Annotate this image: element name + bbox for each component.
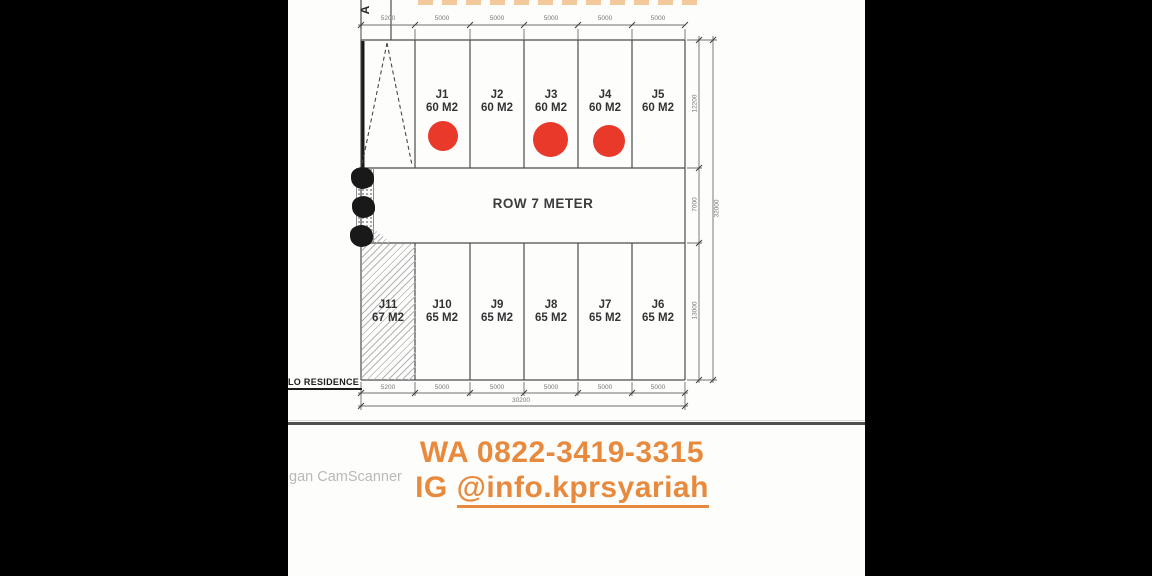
lot-area: 67 M2 — [372, 312, 404, 324]
lot-j5: J5 60 M2 — [630, 89, 686, 114]
dim-right-total: 32000 — [714, 187, 721, 231]
lot-j7: J7 65 M2 — [577, 299, 633, 324]
lot-j10: J10 65 M2 — [414, 299, 470, 324]
lot-j6: J6 65 M2 — [630, 299, 686, 324]
page-edge-line — [288, 420, 865, 421]
dim-top-1: 5200 — [366, 15, 410, 22]
lot-area: 60 M2 — [535, 102, 567, 114]
whatsapp-contact: WA 0822-3419-3315 — [288, 436, 836, 470]
sold-marker-j4 — [593, 125, 625, 157]
lot-area: 65 M2 — [481, 312, 513, 324]
lot-id: J5 — [652, 89, 665, 101]
dim-top-3: 5000 — [475, 15, 519, 22]
left-black-bar — [0, 0, 288, 576]
dim-bottom-1: 5200 — [366, 384, 410, 391]
lot-j2: J2 60 M2 — [469, 89, 525, 114]
lot-id: J7 — [599, 299, 612, 311]
lot-id: J11 — [379, 299, 398, 311]
sold-marker-j1 — [428, 121, 458, 151]
lot-area: 60 M2 — [426, 102, 458, 114]
lot-j9: J9 65 M2 — [469, 299, 525, 324]
dim-bottom-4: 5000 — [529, 384, 573, 391]
dim-bottom-5: 5000 — [583, 384, 627, 391]
dim-right-bottom: 13000 — [692, 289, 699, 333]
dim-top-4: 5000 — [529, 15, 573, 22]
dim-total-width: 30200 — [499, 397, 543, 404]
lot-area: 65 M2 — [589, 312, 621, 324]
lot-id: J1 — [436, 89, 449, 101]
dim-right-top: 12200 — [692, 82, 699, 126]
lot-j1: J1 60 M2 — [414, 89, 470, 114]
camscanner-watermark: gan CamScanner — [289, 469, 402, 485]
page-edge-shadow — [288, 422, 865, 425]
dim-top-2: 5000 — [420, 15, 464, 22]
dim-top-5: 5000 — [583, 15, 627, 22]
lot-id: J8 — [545, 299, 558, 311]
tree-icon — [351, 167, 374, 189]
lot-id: J10 — [432, 299, 451, 311]
lot-j11: J11 67 M2 — [360, 299, 416, 324]
dim-bottom-6: 5000 — [636, 384, 680, 391]
right-black-bar — [865, 0, 1152, 576]
instagram-handle: @info.kprsyariah — [457, 471, 709, 508]
lot-area: 60 M2 — [481, 102, 513, 114]
lot-area: 60 M2 — [589, 102, 621, 114]
lot-id: J2 — [491, 89, 504, 101]
dim-bottom-2: 5000 — [420, 384, 464, 391]
tree-icon — [352, 196, 375, 218]
lot-area: 60 M2 — [642, 102, 674, 114]
lot-id: J9 — [491, 299, 504, 311]
video-frame: A J1 60 M2 J2 60 M2 J3 60 M2 J4 60 M2 J5… — [0, 0, 1152, 576]
lot-id: J4 — [599, 89, 612, 101]
lot-id: J6 — [652, 299, 665, 311]
lot-j4: J4 60 M2 — [577, 89, 633, 114]
dim-right-middle: 7000 — [692, 183, 699, 227]
sold-marker-j3 — [533, 122, 568, 157]
lot-area: 65 M2 — [642, 312, 674, 324]
residence-name-label: LO RESIDENCE — [288, 377, 362, 390]
instagram-prefix: IG — [415, 471, 457, 504]
site-plan-photo: A J1 60 M2 J2 60 M2 J3 60 M2 J4 60 M2 J5… — [288, 0, 865, 576]
dim-bottom-3: 5000 — [475, 384, 519, 391]
dim-top-6: 5000 — [636, 15, 680, 22]
lot-area: 65 M2 — [426, 312, 458, 324]
lot-j8: J8 65 M2 — [523, 299, 579, 324]
lot-area: 65 M2 — [535, 312, 567, 324]
lot-id: J3 — [545, 89, 558, 101]
tree-icon — [350, 225, 373, 247]
row-7-meter-label: ROW 7 METER — [443, 196, 643, 211]
lot-j3: J3 60 M2 — [523, 89, 579, 114]
